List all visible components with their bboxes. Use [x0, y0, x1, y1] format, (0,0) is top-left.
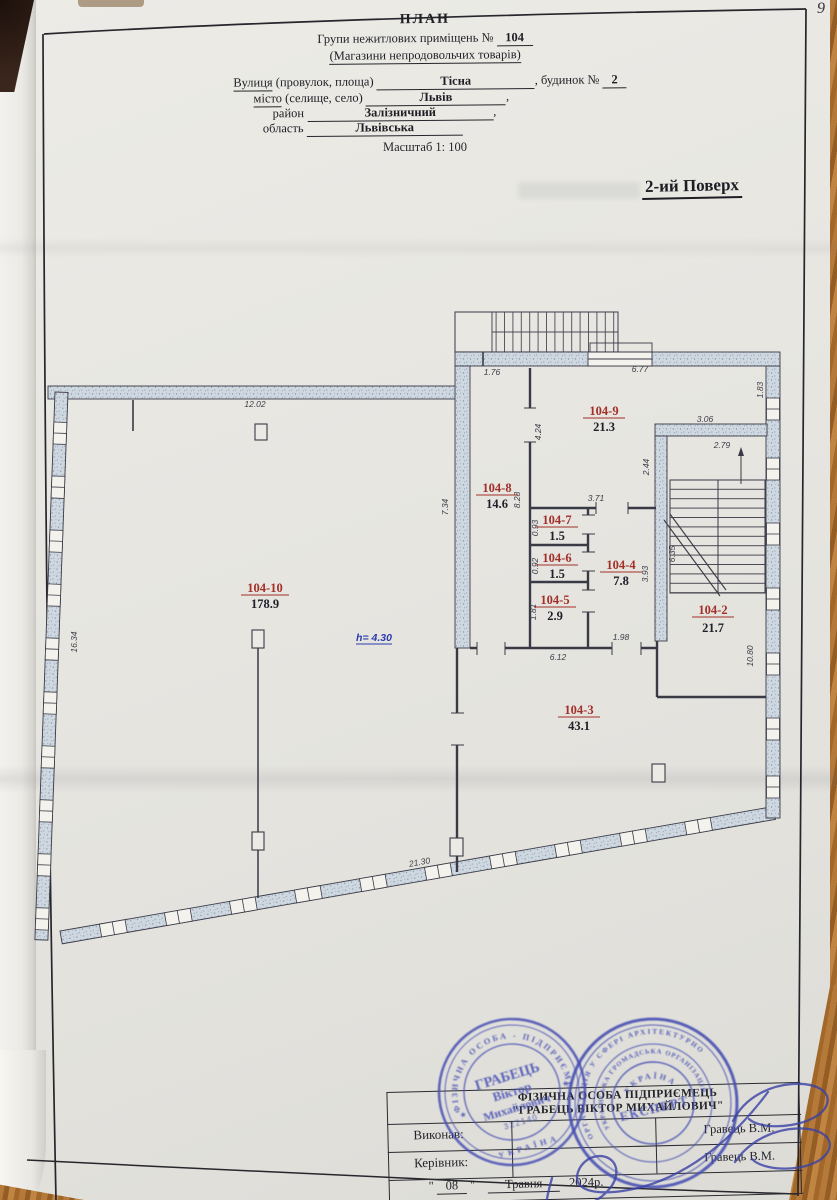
head-label: Керівник: [414, 1154, 468, 1171]
floor-title: 2-ий Поверх [642, 175, 742, 200]
date-year: 2024р. [569, 1175, 604, 1190]
scanned-floorplan-photo: 9 [0, 0, 837, 1200]
building-number: 2 [603, 72, 627, 88]
scale-label: Масштаб 1: 100 [190, 140, 660, 155]
head-name: Гравець В.М. [680, 1149, 775, 1166]
date-month: Травня [487, 1176, 559, 1194]
subtitle-prefix: Групи нежитлових приміщень № [317, 30, 493, 46]
comma: , [506, 89, 509, 103]
date-day: 08 [437, 1178, 467, 1195]
premises-type: (Магазини непродовольчих товарів) [329, 47, 520, 65]
district-label: район [273, 106, 305, 120]
street-label: Вулиця [233, 75, 272, 91]
region-label: область [263, 121, 304, 135]
address-region-row: область Львівська [263, 120, 463, 138]
street-value: Тісна [377, 73, 535, 90]
document-title: ПЛАН [190, 10, 660, 30]
street-label-rest: (провулок, площа) [273, 74, 374, 89]
executor-label: Виконав: [413, 1126, 464, 1143]
quote-close: " [470, 1178, 475, 1192]
address-street-row: Вулиця (провулок, площа) Тісна, будинок … [233, 72, 626, 91]
quote-open: " [429, 1179, 434, 1193]
date-row: " 08 " Травня 2024р. [429, 1175, 604, 1195]
premises-number: 104 [497, 30, 533, 46]
building-label: , будинок № [535, 72, 600, 87]
city-label: місто [253, 91, 282, 107]
comma: , [493, 104, 496, 118]
bleed-through-smudge [518, 182, 640, 199]
city-label-rest: (селище, село) [282, 91, 363, 106]
executor-name: Гравець В.М. [679, 1121, 774, 1138]
document-header: ПЛАН Групи нежитлових приміщень № 104 (М… [190, 10, 660, 66]
page-curl-bottom-left [0, 1050, 46, 1200]
page-edge-left [0, 0, 36, 1200]
signature-table: ФІЗИЧНА ОСОБА ПІДПРИЄМЕЦЬ "ГРАБЕЦЬ ВІКТО… [386, 1066, 803, 1200]
background-sliver-top [78, 0, 144, 7]
region-value: Львівська [307, 120, 463, 137]
